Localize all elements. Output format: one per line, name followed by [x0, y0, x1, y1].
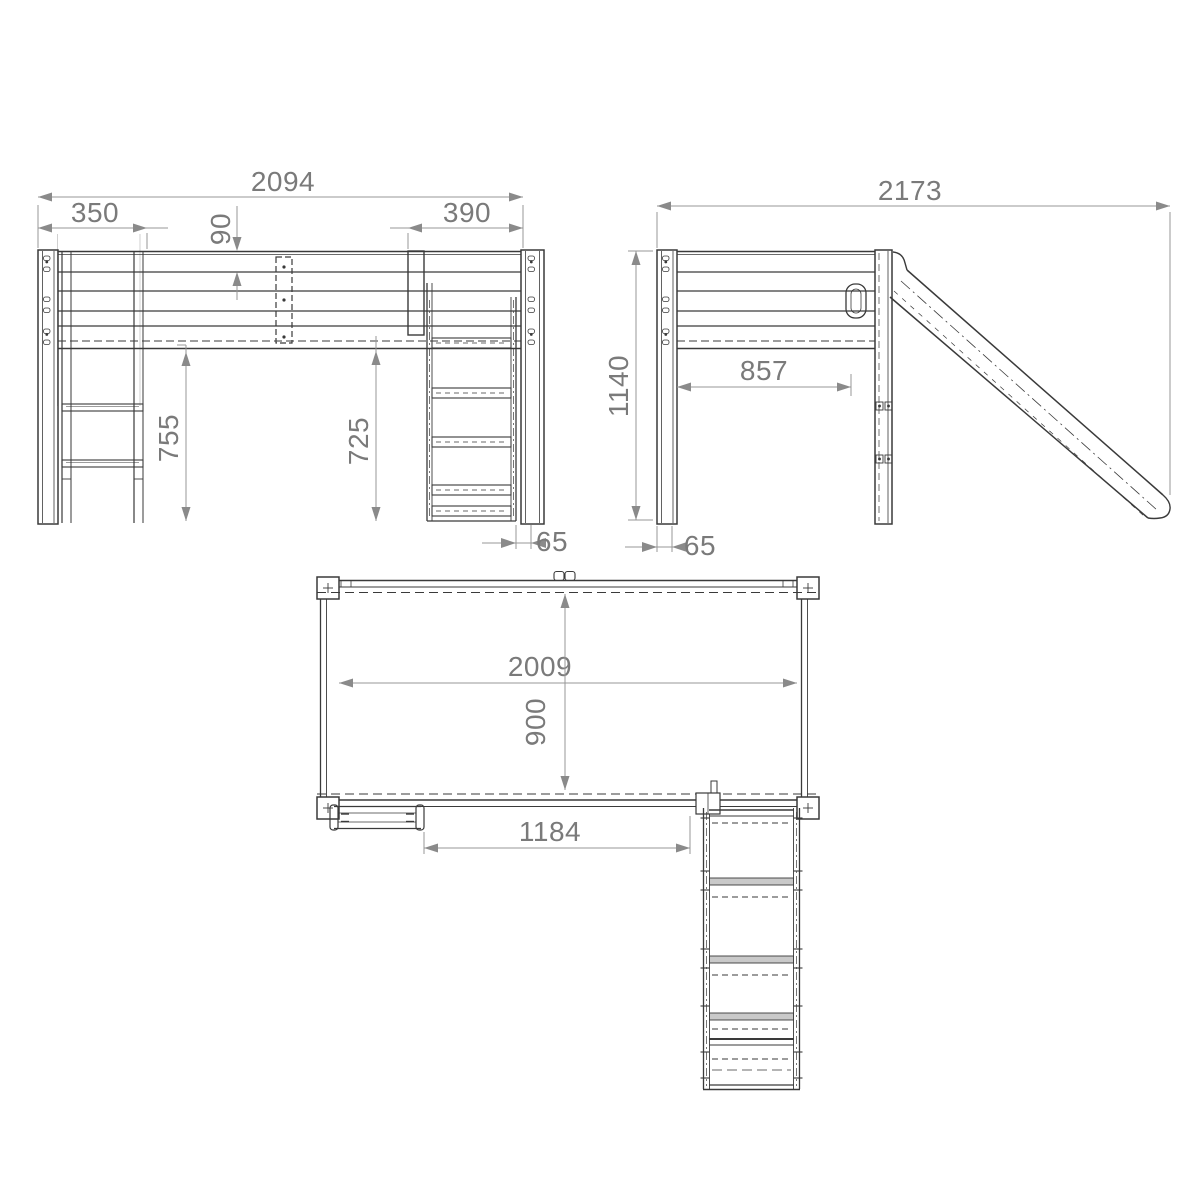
dim-plan-bed-length: 2009 — [508, 651, 572, 682]
dim-side-inner-span: 857 — [740, 355, 788, 386]
dim-front-edge-offset: 65 — [536, 526, 568, 557]
dim-front-ladder-span: 350 — [71, 197, 119, 228]
dim-front-slide-span: 390 — [443, 197, 491, 228]
dim-side-overall-depth: 2173 — [878, 175, 942, 206]
dim-front-clearance-right: 725 — [343, 417, 374, 465]
dim-front-guardrail-height: 90 — [205, 213, 236, 245]
dim-front-overall-width: 2094 — [251, 166, 315, 197]
dim-plan-bed-width: 900 — [520, 698, 551, 746]
technical-drawing: 2094 350 390 90 755 — [0, 0, 1200, 1200]
dim-side-leg-width: 65 — [684, 530, 716, 561]
dim-plan-ladder-to-slide: 1184 — [519, 816, 581, 847]
dim-front-clearance-left: 755 — [153, 414, 184, 462]
drawing-background — [0, 0, 1200, 1200]
dim-side-total-height: 1140 — [603, 355, 634, 417]
